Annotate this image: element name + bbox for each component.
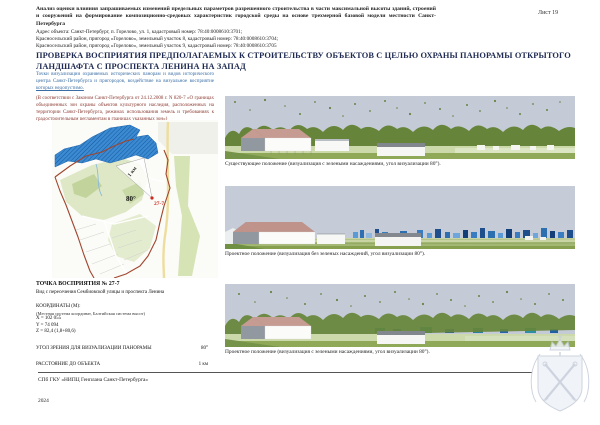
panorama-project-without-greenery xyxy=(225,186,575,249)
location-map: 1 км 80° 27-7 xyxy=(52,120,218,278)
panorama-caption: Существующее положение (визуализация с з… xyxy=(225,161,575,167)
address-line: Адрес объекта: Санкт-Петербург, п. Горел… xyxy=(36,29,456,36)
section-heading: ПРОВЕРКА ВОСПРИЯТИЯ ПРЕДПОЛАГАЕМЫХ К СТР… xyxy=(36,50,581,72)
viewpoint-subtitle: Вид с пересечения Сембиовской улицы и пр… xyxy=(36,290,212,297)
document-title: Анализ оценки влияния запрашиваемых изме… xyxy=(36,6,436,28)
viewpoint-title: ТОЧКА ВОСПРИЯТИЯ № 27-7 xyxy=(36,281,212,289)
address-line: Красносельский район, пригород «Горелово… xyxy=(36,36,456,43)
viewpoint-number-label: 27-7 xyxy=(154,201,164,207)
distance-value: 1 км xyxy=(199,362,208,369)
viz-note-text: Точки визуализации охраняемых историческ… xyxy=(36,72,214,84)
sheet-number: Лист 19 xyxy=(538,10,558,16)
coord-z: Z = 82,4 (1,8+80,6) xyxy=(36,329,212,336)
view-angle-label: УГОЛ ЗРЕНИЯ ДЛЯ ВИЗУАЛИЗАЦИИ ПАНОРАМЫ xyxy=(36,346,152,353)
address-line: Красносельский район, пригород «Горелово… xyxy=(36,43,456,50)
distance-row: РАССТОЯНИЕ ДО ОБЪЕКТА 1 км xyxy=(36,362,208,369)
object-address: Адрес объекта: Санкт-Петербург, п. Горел… xyxy=(36,29,456,50)
view-angle-row: УГОЛ ЗРЕНИЯ ДЛЯ ВИЗУАЛИЗАЦИИ ПАНОРАМЫ 80… xyxy=(36,346,208,353)
view-angle-label: 80° xyxy=(126,195,136,203)
document-page: Лист 19 Анализ оценки влияния запрашивае… xyxy=(0,0,600,425)
spb-coat-of-arms-watermark xyxy=(520,330,600,425)
footer-divider xyxy=(38,372,532,373)
distance-label: РАССТОЯНИЕ ДО ОБЪЕКТА xyxy=(36,362,100,369)
viewpoint-marker xyxy=(150,196,153,199)
view-angle-value: 80° xyxy=(201,346,208,353)
viewpoint-info: ТОЧКА ВОСПРИЯТИЯ № 27-7 Вид с пересечени… xyxy=(36,281,212,369)
viz-note-underlined: которых недопустимо. xyxy=(36,86,84,91)
document-year: 2024 xyxy=(38,398,49,404)
panorama-existing-with-greenery xyxy=(225,96,575,159)
organization-name: СПб ГКУ «НИПЦ Генплана Санкт-Петербурга» xyxy=(38,377,148,383)
visualization-points-note: Точки визуализации охраняемых историческ… xyxy=(36,72,214,93)
panorama-caption: Проектное положение (визуализация без зе… xyxy=(225,251,575,257)
